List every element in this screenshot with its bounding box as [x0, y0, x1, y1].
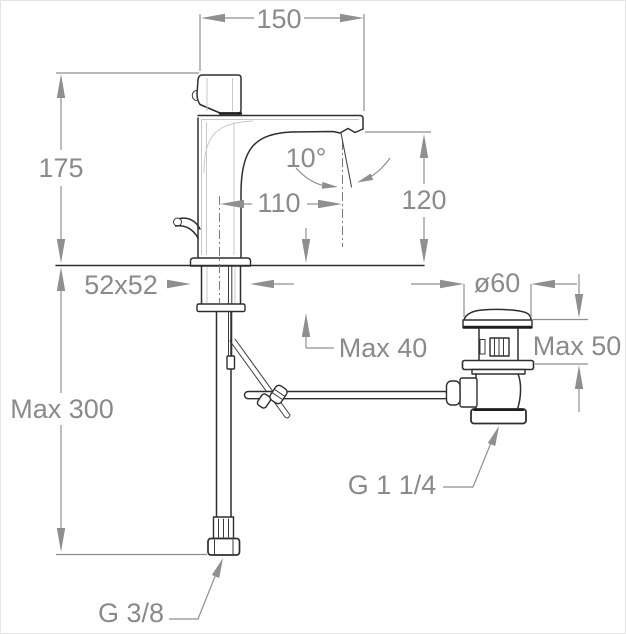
faucet-body: [174, 75, 364, 266]
pull-rod-knob: [174, 218, 201, 238]
waste-thread-label: G 1 1/4: [348, 470, 437, 500]
supply-hose-connector: [208, 517, 240, 555]
dim-110-label: 110: [257, 188, 300, 218]
mounting-washer: [197, 304, 245, 312]
dimension-110: 110: [220, 188, 342, 218]
faucet-dimension-diagram: 150 175 Max 300 52x52 110: [1, 1, 626, 634]
dim-max-300-label: Max 300: [10, 394, 114, 424]
waste-plug-flange: [463, 320, 532, 327]
dim-dia-60-label: ø60: [474, 268, 521, 298]
waste-tailpiece-nut: [471, 409, 526, 424]
dimension-175: 175: [38, 73, 199, 263]
dim-max-40-label: Max 40: [339, 333, 428, 363]
dim-175-label: 175: [38, 153, 83, 183]
dimension-max-300: Max 300: [10, 267, 207, 555]
dimension-150: 150: [200, 4, 364, 111]
waste-assembly: [447, 309, 534, 423]
dim-52x52-label: 52x52: [84, 270, 158, 300]
dim-120-label: 120: [401, 185, 446, 215]
dimension-max-50: Max 50: [533, 274, 622, 412]
spout-outline: [198, 116, 363, 130]
label-supply-thread: G 3/8: [98, 557, 227, 628]
rod-clamp: [256, 384, 288, 409]
technical-drawing: 150 175 Max 300 52x52 110: [0, 0, 626, 634]
label-waste-thread: G 1 1/4: [348, 425, 503, 500]
dim-150-label: 150: [256, 4, 301, 34]
under-deck-assembly: [197, 266, 449, 555]
dimension-max-40: Max 40: [302, 228, 427, 363]
supply-thread-label: G 3/8: [98, 598, 164, 628]
handle-lever: [197, 75, 241, 113]
dim-max-50-label: Max 50: [533, 331, 622, 361]
dimension-52x52: 52x52: [84, 270, 294, 300]
dimension-angle-10: 10°: [286, 143, 390, 190]
dim-angle-label: 10°: [286, 143, 327, 173]
dimension-120: 120: [365, 132, 447, 263]
waste-locknut: [463, 361, 534, 370]
